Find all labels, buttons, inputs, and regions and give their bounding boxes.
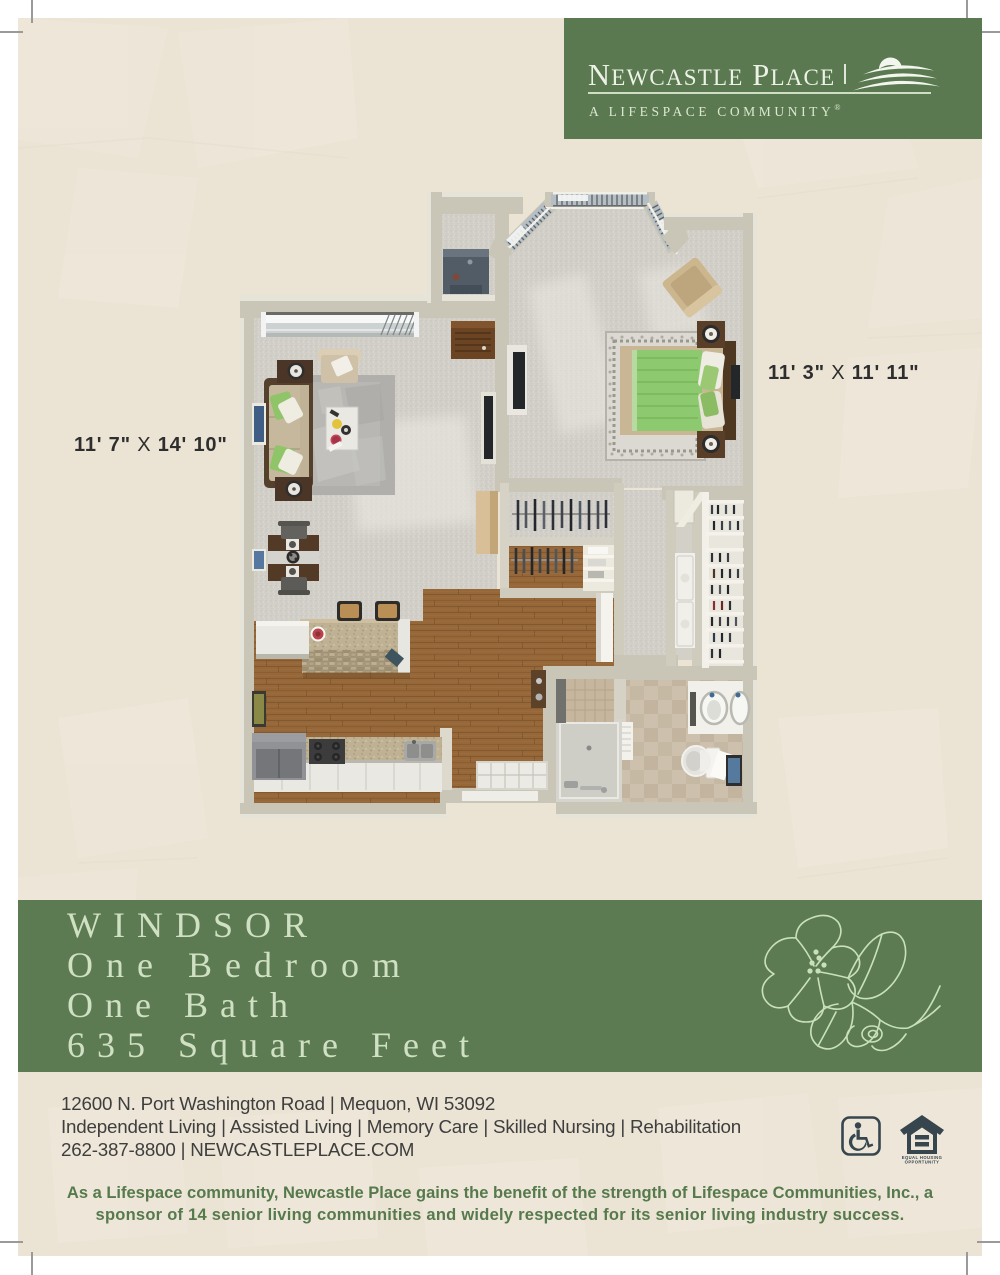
svg-text:OPPORTUNITY: OPPORTUNITY	[905, 1160, 940, 1165]
